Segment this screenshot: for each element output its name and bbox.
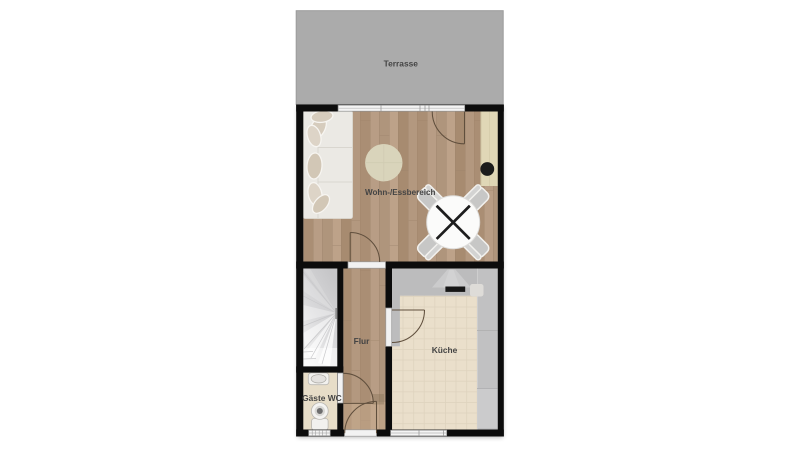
svg-text:Terrasse: Terrasse	[384, 59, 419, 69]
svg-text:Gäste WC: Gäste WC	[302, 393, 342, 403]
svg-text:Flur: Flur	[354, 336, 371, 346]
svg-text:Wohn-/Essbereich: Wohn-/Essbereich	[365, 188, 436, 197]
svg-text:Küche: Küche	[432, 345, 458, 355]
